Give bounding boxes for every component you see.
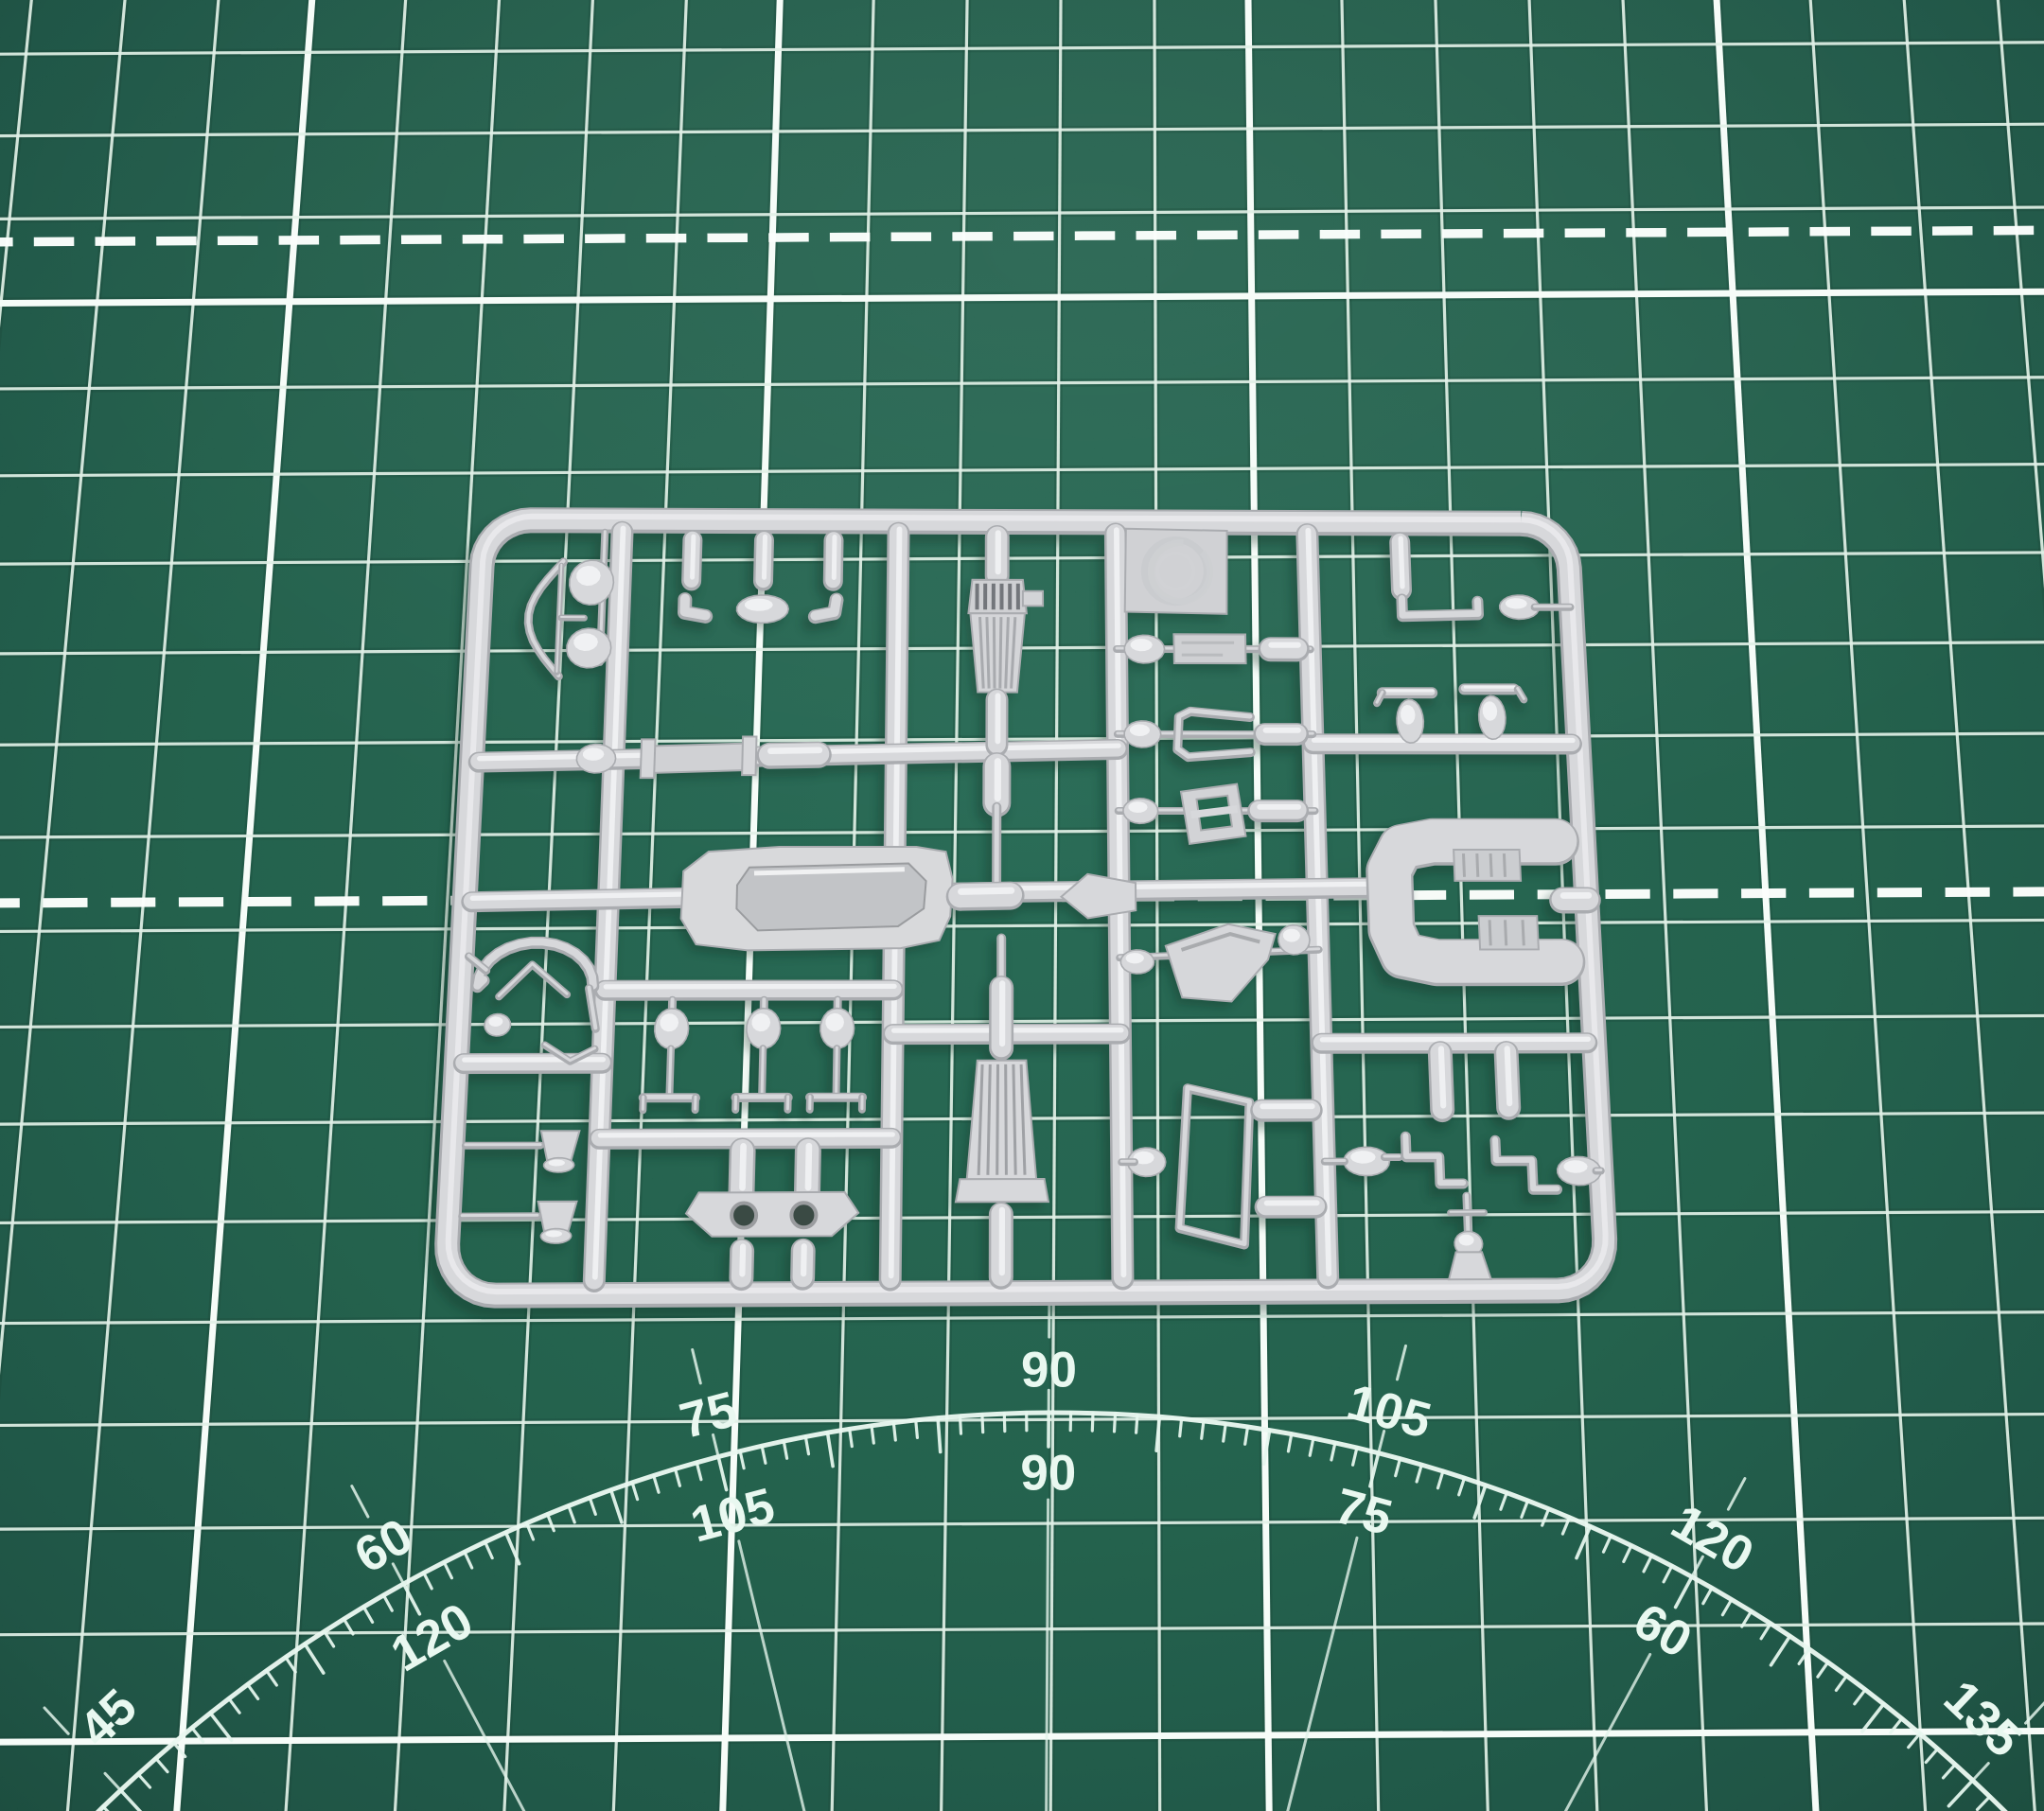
svg-text:90: 90 <box>1020 1446 1076 1502</box>
svg-text:90: 90 <box>1021 1343 1077 1398</box>
